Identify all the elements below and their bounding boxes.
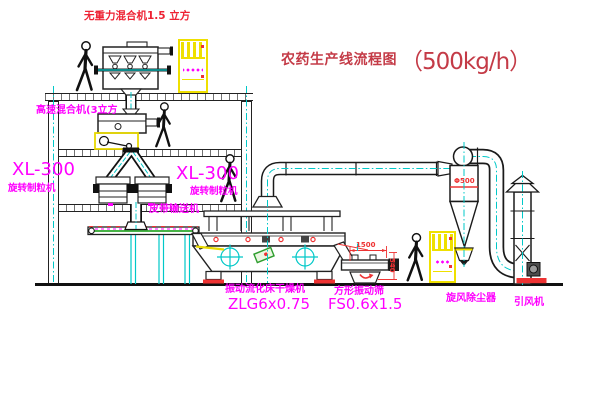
sieve-length-dimension: 1500 bbox=[356, 242, 375, 249]
dryer-model-label: ZLG6x0.75 bbox=[228, 297, 310, 312]
building-floor2-slab bbox=[58, 149, 252, 157]
title-text: 农药生产线流程图 bbox=[281, 49, 397, 69]
person-ground bbox=[408, 234, 423, 281]
dryer-name-label: 振动流化床干燥机 bbox=[225, 285, 305, 295]
diagram-title: 农药生产线流程图 （500kg/h） bbox=[281, 42, 531, 76]
granulator-name-left: 旋转制粒机 bbox=[8, 184, 56, 194]
cyclone-diameter-dimension: Φ500 bbox=[454, 178, 475, 185]
title-capacity: （500kg/h） bbox=[400, 42, 531, 76]
exhaust-duct bbox=[268, 162, 453, 201]
induced-draft-fan bbox=[517, 263, 547, 284]
sieve-height-dimension: 540 bbox=[388, 258, 395, 273]
person-floor2 bbox=[156, 103, 170, 146]
person-roof bbox=[77, 42, 92, 90]
building-right-column bbox=[241, 101, 252, 285]
granulator-model-left: XL-300 bbox=[12, 161, 75, 179]
control-cabinet-2 bbox=[429, 231, 456, 283]
granulator-model-right: XL-300 bbox=[176, 165, 239, 183]
granulator-right bbox=[132, 177, 172, 206]
granulator-name-right: 旋转制粒机 bbox=[190, 187, 238, 197]
high-speed-mixer-label: 高速混合机(3立方 bbox=[36, 106, 118, 116]
sieve-model-label: FS0.6x1.5 bbox=[328, 297, 402, 312]
granulator-left bbox=[93, 177, 133, 206]
gravity-mixer-label: 无重力混合机1.5 立方 bbox=[84, 11, 190, 22]
belt-conveyor bbox=[88, 227, 199, 285]
exhaust-stack bbox=[507, 171, 539, 285]
fan-name-label: 引风机 bbox=[514, 298, 544, 308]
building-roof-slab bbox=[45, 93, 253, 101]
return-pipe bbox=[469, 148, 540, 272]
cyclone-name-label: 旋风除尘器 bbox=[446, 294, 496, 304]
belt-conveyor-label: 皮带输送机 bbox=[149, 205, 199, 215]
cabinet-indicator-dots bbox=[183, 66, 203, 74]
control-cabinet-1 bbox=[178, 39, 208, 93]
process-flow-diagram: 农药生产线流程图 （500kg/h） 无重力混合机1.5 立方 高速混合机(3立… bbox=[0, 0, 600, 403]
